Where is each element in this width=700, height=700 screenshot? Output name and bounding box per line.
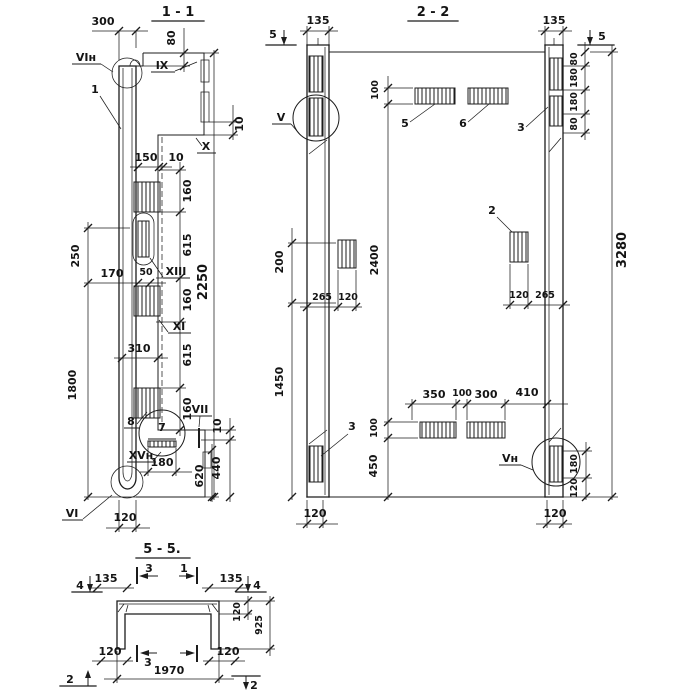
- s22-dim-120-br: 120: [544, 507, 567, 520]
- s22-cut-5-right: 5: [598, 30, 606, 43]
- s22-part-5: 5: [401, 117, 409, 130]
- s55-cut-2-right: 2: [250, 679, 258, 692]
- s11-ref-xi: XI: [173, 320, 186, 333]
- s22-part-2: 2: [488, 204, 496, 217]
- engineering-drawing: 1 - 1 300 80: [0, 0, 700, 700]
- s55-cut-2-left: 2: [66, 673, 74, 686]
- s22-dim-300: 300: [475, 388, 498, 401]
- s11-dim-620: 620: [193, 464, 206, 487]
- s22-dim-135-r: 135: [543, 14, 566, 27]
- s55-cut-4-right: 4: [253, 579, 261, 592]
- s22-dim-135-l: 135: [307, 14, 330, 27]
- s22-dim-80-2: 80: [569, 117, 580, 131]
- s22-dim-180-2: 180: [569, 92, 580, 112]
- s22-dim-450: 450: [367, 454, 380, 477]
- s22-dim-100-top: 100: [370, 80, 381, 100]
- s22-dim-120-l: 120: [338, 292, 358, 303]
- s11-dim-2250: 2250: [196, 264, 211, 300]
- s22-dim-80-1: 80: [569, 52, 580, 66]
- s22-dim-100-row: 100: [452, 388, 472, 399]
- s11-ref-vi: VI: [66, 507, 79, 520]
- s11-ref-vii: VII: [192, 403, 209, 416]
- s22-dim-3280: 3280: [615, 232, 630, 268]
- s11-dim-1800: 1800: [66, 369, 79, 400]
- s22-part-6: 6: [459, 117, 467, 130]
- s11-ref-xiii: XIII: [166, 265, 187, 278]
- s11-dim-80: 80: [165, 30, 178, 46]
- s22-ref-v-n: Vн: [502, 452, 518, 465]
- s11-dim-160-2: 160: [181, 288, 194, 311]
- s11-dim-120: 120: [114, 511, 137, 524]
- s55-dim-120-bl: 120: [99, 645, 122, 658]
- s22-dim-100-bot: 100: [369, 418, 380, 438]
- s22-dim-1450: 1450: [273, 366, 286, 397]
- s11-dim-615-1: 615: [181, 234, 194, 257]
- s11-part-7: 7: [158, 421, 166, 434]
- s55-cut-3-bot: 3: [144, 656, 152, 669]
- s11-ref-xv-n: XVн: [129, 449, 154, 462]
- s55-cut-4-left: 4: [76, 579, 84, 592]
- section-2-2: 2 - 2 5: [266, 5, 630, 528]
- s22-dim-120-bl: 120: [304, 507, 327, 520]
- s22-dim-180-b: 180: [569, 454, 580, 474]
- s11-dim-10-bot: 10: [211, 418, 224, 434]
- s22-dim-200: 200: [273, 250, 286, 273]
- s22-dim-410: 410: [516, 386, 539, 399]
- section-2-2-title: 2 - 2: [417, 5, 450, 20]
- s11-dim-170: 170: [101, 267, 124, 280]
- s11-part-8: 8: [127, 415, 135, 428]
- s55-dim-135-r: 135: [220, 572, 243, 585]
- s11-dim-300: 300: [92, 15, 115, 28]
- s11-dim-615-2: 615: [181, 344, 194, 367]
- s11-dim-50: 50: [139, 267, 153, 278]
- s22-dim-120-r: 120: [509, 290, 529, 301]
- s11-dim-10-step: 10: [168, 151, 184, 164]
- s11-dim-160-1: 160: [181, 179, 194, 202]
- s22-part-3-top: 3: [517, 121, 525, 134]
- drawing-sheet: 1 - 1 300 80: [0, 0, 700, 700]
- s22-dim-265-r: 265: [535, 290, 555, 301]
- s55-cut-1-top: 1: [180, 562, 188, 575]
- s55-dim-120-slab: 120: [232, 602, 243, 622]
- s22-dim-120-b: 120: [569, 478, 580, 498]
- section-1-1: 1 - 1 300 80: [62, 5, 246, 532]
- s11-dim-440: 440: [210, 456, 223, 479]
- s11-ref-ix: IX: [156, 59, 169, 72]
- s11-dim-10-top: 10: [233, 116, 246, 132]
- s55-cut-3-top: 3: [145, 562, 153, 575]
- s11-dim-250: 250: [69, 244, 82, 267]
- s11-ref-x: X: [202, 140, 211, 153]
- s22-cut-5-left: 5: [269, 28, 277, 41]
- section-1-1-title: 1 - 1: [162, 5, 195, 20]
- s11-dim-310: 310: [128, 342, 151, 355]
- s55-dim-925: 925: [254, 615, 265, 635]
- s22-part-3-bot: 3: [348, 420, 356, 433]
- section-5-5-title: 5 - 5.: [143, 542, 180, 557]
- s11-dim-150: 150: [135, 151, 158, 164]
- s11-ref-vi-n: VIн: [76, 51, 96, 64]
- s55-dim-135-l: 135: [95, 572, 118, 585]
- s22-ref-v: V: [277, 111, 286, 124]
- s55-dim-120-br: 120: [217, 645, 240, 658]
- s55-dim-1970: 1970: [154, 664, 185, 677]
- s22-dim-180-1: 180: [569, 68, 580, 88]
- s22-dim-2400: 2400: [368, 244, 381, 275]
- s11-part-1: 1: [91, 83, 99, 96]
- s22-dim-265-l: 265: [312, 292, 332, 303]
- section-5-5: 5 - 5. 4 4 3 1 135 135 120: [60, 542, 275, 692]
- s22-dim-350: 350: [423, 388, 446, 401]
